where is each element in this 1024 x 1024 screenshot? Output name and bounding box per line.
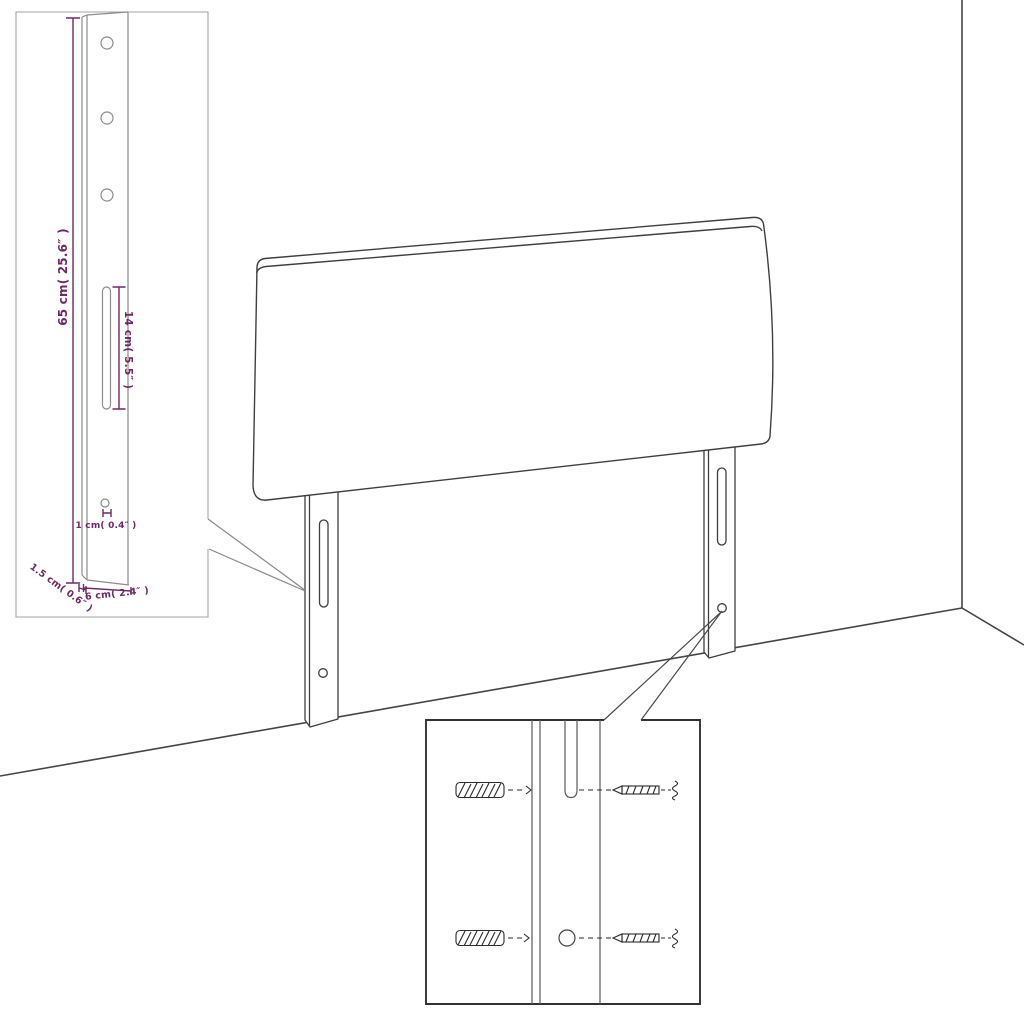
dim-slot-length-label: 14 cm( 5.5″ ) xyxy=(122,311,134,389)
left-leg xyxy=(305,470,338,727)
callout-lines xyxy=(208,519,722,720)
dim-hole-diameter-label: 1 cm( 0.4″ ) xyxy=(76,521,137,531)
callout-bottom-inset xyxy=(604,611,722,720)
headboard-panel xyxy=(253,217,773,500)
inset-leg-small-hole xyxy=(101,499,109,507)
inset-leg-slot xyxy=(103,287,111,409)
diagram-line-art xyxy=(0,0,1024,1024)
right-leg-slot xyxy=(718,468,727,545)
diagram-canvas: 65 cm( 25.6″ ) 14 cm( 5.5″ ) 1 cm( 0.4″ … xyxy=(0,0,1024,1024)
callout-top-inset xyxy=(208,519,304,591)
dim-leg-height-label: 65 cm( 25.6″ ) xyxy=(56,228,70,326)
inset-leg-hole-1 xyxy=(101,37,113,49)
floor-edge-right xyxy=(962,608,1024,645)
inset-leg-hole-3 xyxy=(101,189,113,201)
left-leg-slot xyxy=(320,520,329,607)
inset-hole xyxy=(559,930,575,946)
inset-hardware-detail xyxy=(426,720,700,1004)
left-leg-hole xyxy=(319,669,328,678)
inset-leg-hole-2 xyxy=(101,112,113,124)
